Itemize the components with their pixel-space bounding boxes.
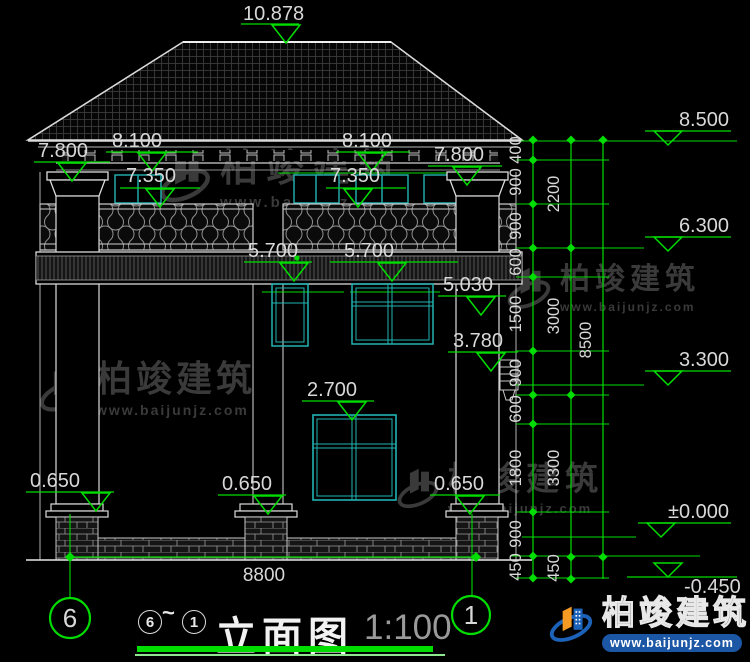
title-underline-thin xyxy=(135,654,445,656)
overall-dim-label: 8800 xyxy=(243,565,285,586)
elevation-label: 5.700 xyxy=(248,240,298,262)
brand-name: 柏竣建筑 xyxy=(602,596,750,629)
elevation-label: 7.800 xyxy=(38,140,88,162)
elevation-label: 7.350 xyxy=(330,165,380,187)
dim-chain-label: 450 xyxy=(507,553,525,581)
axis-bubble-label: 6 xyxy=(63,603,77,633)
elevation-label: 7.800 xyxy=(434,144,484,166)
sequence-start-bubble: 6 xyxy=(138,610,162,634)
elevation-label: 3.780 xyxy=(453,330,503,352)
elevation-label: 2.700 xyxy=(307,379,357,401)
dim-chain-label: 600 xyxy=(507,248,525,276)
title-underline-thick xyxy=(137,646,433,652)
green-dot xyxy=(294,255,299,260)
second-floor-windows xyxy=(262,284,440,346)
elevation-label: 8.100 xyxy=(342,130,392,152)
level-marker-triangle xyxy=(654,371,682,385)
elevation-label: 0.650 xyxy=(434,473,484,495)
cad-canvas: 柏竣建筑 www.baijunjz.com 柏竣建筑 www.baijunjz.… xyxy=(0,0,750,662)
dim-tick xyxy=(567,575,576,584)
elevation-label: 0.650 xyxy=(222,473,272,495)
elevation-label: 5.030 xyxy=(443,274,493,296)
level-label: 3.300 xyxy=(679,349,729,371)
dim-tick xyxy=(529,574,538,583)
brand-logo-icon xyxy=(544,589,598,659)
brand-logo: 柏竣建筑 www.baijunjz.com xyxy=(544,588,750,660)
dim-tick xyxy=(529,273,538,282)
level-marker-triangle xyxy=(654,131,682,145)
dim-tick xyxy=(529,244,538,253)
level-marker-triangle xyxy=(654,563,682,577)
dim-chain-label: 2200 xyxy=(545,176,563,213)
dim-tick xyxy=(529,391,538,400)
elevation-label: 7.350 xyxy=(126,165,176,187)
dim-tick xyxy=(599,553,608,562)
elevation-label: 0.650 xyxy=(30,470,80,492)
dim-tick xyxy=(567,136,576,145)
pedestals-base xyxy=(26,504,532,560)
dim-tick xyxy=(529,552,538,561)
dim-tick xyxy=(567,391,576,400)
dim-chain-label: 3000 xyxy=(545,298,563,335)
sequence-end-bubble: 1 xyxy=(182,610,206,634)
dim-chain-label: 600 xyxy=(507,395,525,423)
dim-tick xyxy=(529,156,538,165)
elevation-marker-triangle xyxy=(272,25,300,43)
dim-chain-label: 900 xyxy=(507,359,525,387)
elevation-label: 8.100 xyxy=(112,130,162,152)
dim-tick xyxy=(599,136,608,145)
elevation-label: 10.878 xyxy=(243,3,304,25)
level-marker-triangle xyxy=(654,237,682,251)
mid-wall-edges xyxy=(253,284,283,504)
level-marker-triangle xyxy=(647,523,675,537)
dim-tick xyxy=(529,200,538,209)
dim-tick xyxy=(567,553,576,562)
level-label: 6.300 xyxy=(679,215,729,237)
tilde-separator: ~ xyxy=(162,600,175,626)
dim-tick xyxy=(529,347,538,356)
level-label: 8.500 xyxy=(679,109,729,131)
dim-chain-label: 400 xyxy=(507,136,525,164)
dim-tick xyxy=(567,244,576,253)
dim-tick xyxy=(529,508,538,517)
first-floor-window xyxy=(313,415,396,500)
dim-chain-label: 900 xyxy=(507,168,525,196)
dim-chain-label: 900 xyxy=(507,520,525,548)
hip-roof xyxy=(28,42,522,147)
dim-chain-label: 1800 xyxy=(507,450,525,487)
brand-url: www.baijunjz.com xyxy=(602,634,742,652)
elevation-drawing: 10.8788.1008.1007.8007.8007.3507.3505.70… xyxy=(0,0,750,662)
axis-bubble-label: 1 xyxy=(464,600,478,630)
dim-tick xyxy=(529,420,538,429)
dim-chain-label: 1500 xyxy=(507,296,525,333)
elevation-label: 5.700 xyxy=(344,240,394,262)
level-label: ±0.000 xyxy=(668,501,729,523)
dim-chain-label: 3300 xyxy=(545,450,563,487)
dim-chain-label: 450 xyxy=(545,554,563,582)
dim-chain-label: 8500 xyxy=(577,322,595,359)
drawing-scale: 1:100 xyxy=(364,608,452,648)
dim-tick xyxy=(529,136,538,145)
dim-chain-label: 900 xyxy=(507,212,525,240)
